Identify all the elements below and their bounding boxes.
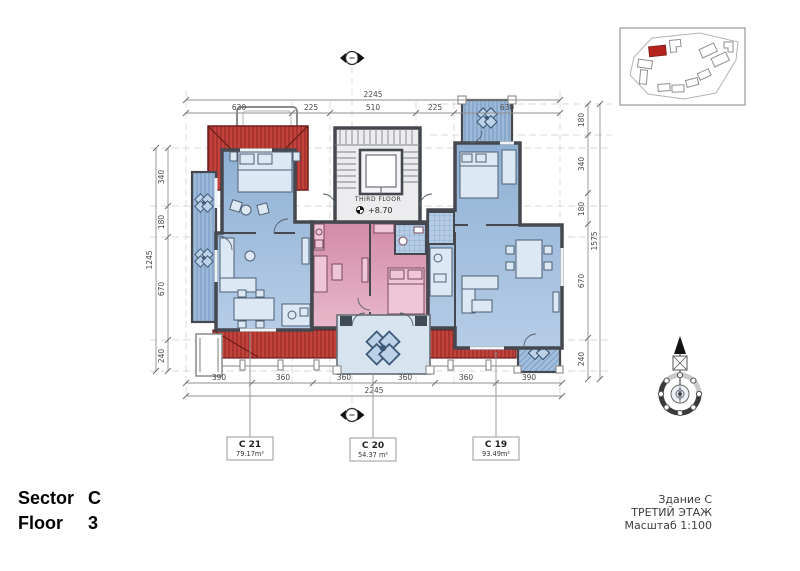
dim-left-seg: 340 [157,170,166,185]
dim-bottom-seg: 360 [398,373,413,382]
north-arrow-icon [673,336,687,386]
dim-right-seg: 180 [577,202,586,217]
dim-top-seg: 630 [232,103,247,112]
level-mark-icon [356,206,363,213]
sector-value: C [88,486,101,511]
dim-bottom-seg: 360 [459,373,474,382]
floor-row: Floor 3 [18,511,101,536]
sector-label: Sector [18,486,88,511]
dim-right-seg: 670 [577,274,586,289]
dim-left-seg: 670 [157,282,166,297]
unit-id: C 21 [239,440,261,450]
title-block: Sector C Floor 3 [18,486,101,536]
dim-bottom-seg: 360 [276,373,291,382]
section-marker-top-icon [340,52,365,65]
unit-area: 54.37 m² [358,451,388,459]
unit-label-c21: C 21 79.17m² [227,437,273,460]
dim-right-seg: 340 [577,157,586,172]
dim-right-total: 1575 [590,231,599,250]
unit-id: C 19 [485,440,507,450]
dim-top-seg: 630 [500,103,515,112]
floor-plan-drawing: THIRD FLOOR +8.70 [0,0,800,571]
dim-left-seg: 180 [157,215,166,230]
apartment-c19 [428,143,562,348]
dim-top-seg: 225 [428,103,443,112]
floor-value: 3 [88,511,98,536]
balcony-left [192,172,216,322]
dim-bottom-total: 2245 [364,386,383,395]
dim-top-seg: 510 [366,103,381,112]
stamp-scale: Масштаб 1:100 [625,519,712,532]
drawing-stamp: Здание С ТРЕТИЙ ЭТАЖ Масштаб 1:100 [625,493,712,532]
stamp-floor: ТРЕТИЙ ЭТАЖ [625,506,712,519]
dim-right-seg: 240 [577,352,586,367]
sector-row: Sector C [18,486,101,511]
balcony-center [333,315,434,374]
dim-bottom-seg: 390 [522,373,537,382]
dim-bottom-seg: 390 [212,373,227,382]
unit-area: 93.49m² [482,450,510,458]
unit-area: 79.17m² [236,450,264,458]
stamp-building: Здание С [625,493,712,506]
dim-top-seg: 225 [304,103,319,112]
dim-left-seg: 240 [157,349,166,364]
bathroom-c19 [428,212,454,244]
floor-label: Floor [18,511,88,536]
unit-label-c20: C 20 54.37 m² [350,438,396,461]
apartment-c20 [312,222,428,328]
dim-left-total: 1245 [145,250,154,269]
stair-core: THIRD FLOOR +8.70 [335,128,420,222]
key-plan-highlight-building [649,45,667,57]
dim-top-total: 2245 [363,90,382,99]
key-plan [620,28,745,105]
floor-plan-page: THIRD FLOOR +8.70 [0,0,800,571]
core-elevation: +8.70 [368,206,393,215]
core-floor-label: THIRD FLOOR [354,196,401,203]
section-marker-bottom-icon [340,409,365,422]
dim-bottom-seg: 360 [337,373,352,382]
dim-right-seg: 180 [577,113,586,128]
unit-id: C 20 [362,441,384,451]
unit-label-c19: C 19 93.49m² [473,437,519,460]
